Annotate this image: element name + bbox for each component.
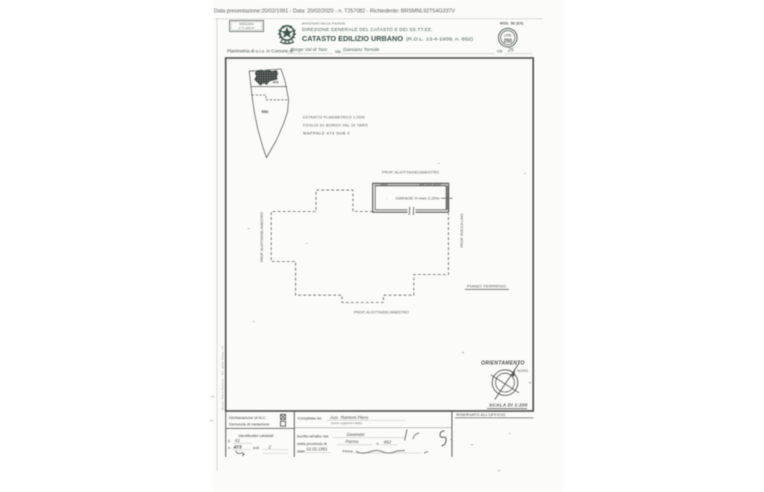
svg-text:sub: sub [253, 446, 259, 450]
svg-text:Identificativi catastali: Identificativi catastali [239, 434, 274, 438]
svg-text:470: 470 [273, 80, 279, 84]
svg-text:MODULARIO: MODULARIO [239, 23, 254, 26]
svg-text:Dichiarazione di N.C.: Dichiarazione di N.C. [229, 415, 267, 420]
svg-text:-: - [386, 196, 387, 200]
svg-text:SCALA DI 1:200: SCALA DI 1:200 [489, 402, 528, 407]
svg-text:F. TG. ANN. 97: F. TG. ANN. 97 [239, 27, 255, 30]
svg-text:MOD. 58 (EX): MOD. 58 (EX) [500, 22, 524, 26]
svg-text:Data presentazione:20/02/1991: Data presentazione:20/02/1991 - Data: 20… [214, 8, 455, 14]
svg-text:PROP. ALIOTTA/DELMAESTRO: PROP. ALIOTTA/DELMAESTRO [354, 311, 409, 315]
svg-text:PROP. ALIOTTA/DELMAESTRO: PROP. ALIOTTA/DELMAESTRO [382, 170, 440, 174]
svg-text:(R.D.L. 13-4-1939, n. 652): (R.D.L. 13-4-1939, n. 652) [406, 36, 474, 41]
svg-text:25: 25 [507, 48, 514, 54]
svg-text:Firma: Firma [343, 448, 354, 453]
svg-text:civ.: civ. [497, 49, 503, 54]
svg-text:61: 61 [235, 438, 241, 443]
svg-text:FOGLIO 61 BORGO VAL DI TAR: FOGLIO 61 BORGO VAL DI TARO [303, 123, 368, 128]
svg-text:Parma: Parma [346, 439, 359, 444]
svg-text:Aus. Ramoni Piero: Aus. Ramoni Piero [329, 415, 369, 420]
svg-text:iscritto all'albo dei: iscritto all'albo dei [297, 434, 329, 439]
svg-text:PROP. ROCCA LINO: PROP. ROCCA LINO [460, 213, 464, 247]
svg-text:(nome, cognome e titolo): (nome, cognome e titolo) [331, 421, 362, 425]
svg-text:Borgo Val di Taro: Borgo Val di Taro [291, 47, 328, 53]
svg-text:LIRE: LIRE [504, 34, 512, 38]
svg-text:Geometri: Geometri [347, 432, 366, 437]
svg-text:462: 462 [384, 440, 392, 445]
svg-text:CATASTO EDILIZIO URBANO: CATASTO EDILIZIO URBANO [302, 34, 403, 43]
svg-text:PIANO TERRENO: PIANO TERRENO [467, 284, 506, 288]
svg-text:PROP. ALIOTTA/DEL MAESTRO: PROP. ALIOTTA/DEL MAESTRO [260, 212, 264, 262]
svg-text:DIREZIONE GENERALE DEL CATASTO: DIREZIONE GENERALE DEL CATASTO E DEI SS.… [302, 27, 433, 32]
svg-text:RISERVATO ALL'UFFICIO: RISERVATO ALL'UFFICIO [457, 413, 506, 417]
svg-text:n.: n. [228, 446, 231, 450]
svg-text:F.: F. [228, 440, 231, 444]
svg-text:ESTRATTO PLANIMETRICO 1:2000: ESTRATTO PLANIMETRICO 1:2000 [303, 115, 365, 120]
svg-text:ORIENTAMENTO: ORIENTAMENTO [481, 361, 525, 367]
svg-text:550: 550 [262, 109, 269, 114]
svg-text:Compilata da:: Compilata da: [298, 416, 323, 421]
svg-text:GARAGE H max 2,20m: GARAGE H max 2,20m [396, 197, 440, 201]
svg-text:n.: n. [377, 442, 380, 446]
svg-text:data: data [297, 448, 306, 453]
svg-text:NORD: NORD [517, 369, 528, 373]
svg-text:Denuncia di variazione: Denuncia di variazione [229, 422, 270, 427]
svg-text:Damiano Tornolo: Damiano Tornolo [343, 47, 380, 53]
svg-text:MINISTERO DELLE FINANZE: MINISTERO DELLE FINANZE [302, 22, 345, 26]
svg-text:2: 2 [268, 445, 272, 450]
svg-text:Planimetria di u.i.u. in C: Planimetria di u.i.u. in Comune di [227, 49, 293, 54]
svg-text:Geom. Piero Ramoni - Str. dell: Geom. Piero Ramoni - Str. delle Selve, 2… [221, 346, 225, 410]
svg-text:della provincia di: della provincia di [297, 441, 327, 446]
svg-text:01.02.1991: 01.02.1991 [307, 446, 328, 451]
svg-text:250: 250 [504, 39, 513, 45]
svg-text:MAPPALE 473 SUB 2: MAPPALE 473 SUB 2 [303, 131, 350, 136]
svg-text:via: via [335, 49, 341, 54]
